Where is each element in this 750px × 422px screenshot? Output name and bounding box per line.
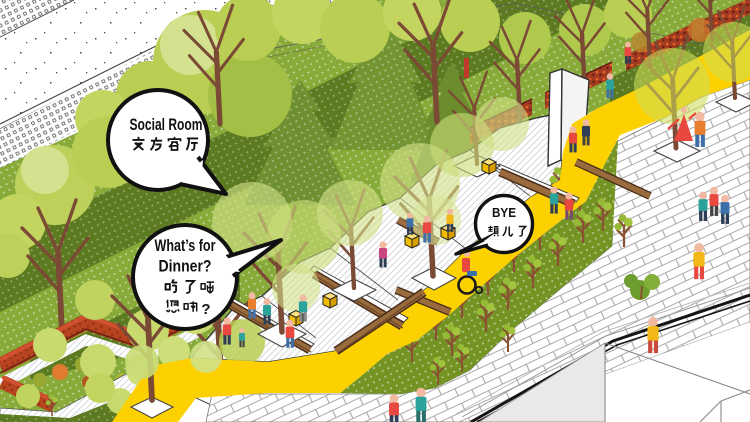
svg-text:BYE: BYE [492,206,516,220]
svg-text:Social Room: Social Room [130,116,203,134]
svg-text:Dinner?: Dinner? [159,258,212,276]
svg-text:What’s for: What’s for [155,237,216,255]
svg-text:?: ? [201,301,210,318]
